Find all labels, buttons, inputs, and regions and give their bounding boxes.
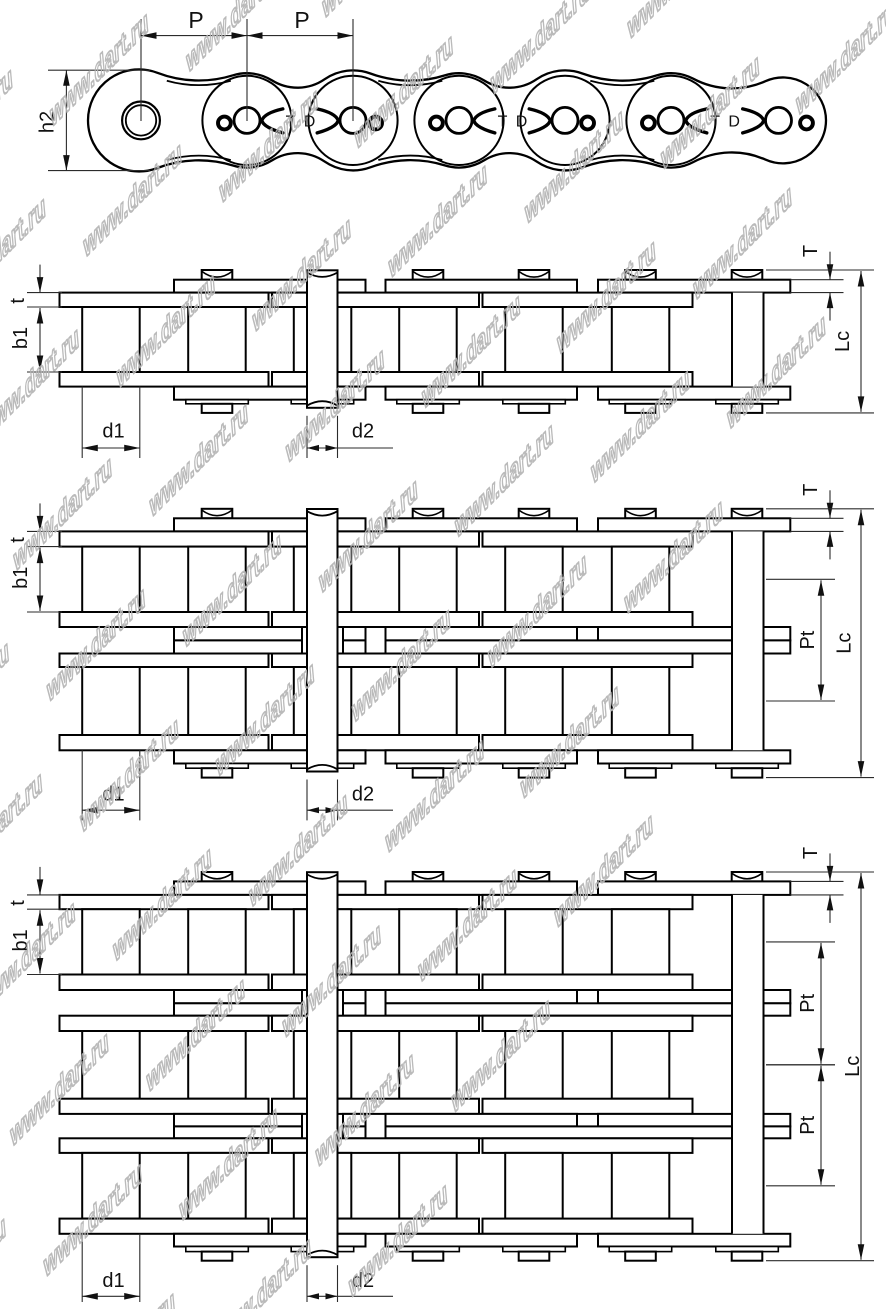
svg-text:Pt: Pt	[797, 630, 819, 649]
svg-text:Lc: Lc	[834, 633, 856, 654]
svg-text:d2: d2	[352, 784, 374, 806]
svg-text:d2: d2	[352, 421, 374, 443]
svg-text:Pt: Pt	[797, 1115, 819, 1134]
svg-text:d1: d1	[102, 1270, 124, 1292]
svg-text:b1: b1	[10, 327, 32, 349]
svg-text:T: T	[800, 847, 822, 859]
svg-text:D: D	[728, 113, 740, 130]
svg-text:t: t	[7, 900, 29, 906]
svg-text:Lc: Lc	[842, 1056, 864, 1077]
svg-text:D: D	[516, 113, 528, 130]
svg-text:T: T	[800, 245, 822, 257]
svg-text:Pt: Pt	[797, 993, 819, 1012]
svg-text:t: t	[7, 298, 29, 304]
svg-text:T: T	[800, 484, 822, 496]
svg-text:T: T	[498, 113, 508, 130]
svg-text:d1: d1	[102, 421, 124, 443]
svg-text:Lc: Lc	[832, 331, 854, 352]
svg-text:P: P	[294, 7, 309, 33]
